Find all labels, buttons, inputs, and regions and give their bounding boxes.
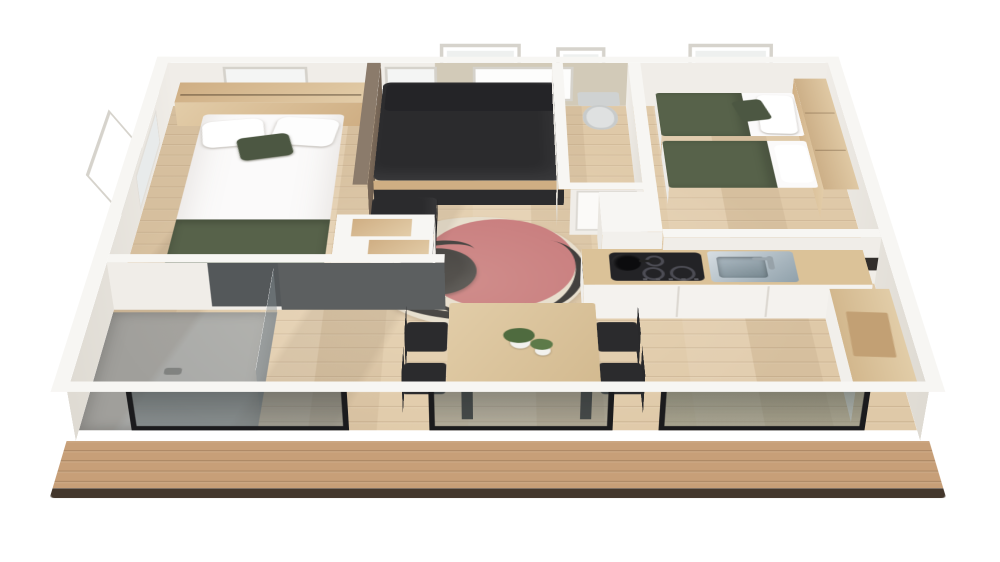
kitchen-sink bbox=[707, 251, 800, 282]
front-glass-bathroom bbox=[125, 386, 349, 430]
wall-top-kitchen bbox=[662, 229, 881, 237]
dining-table bbox=[446, 303, 601, 388]
wall-top-bathroom bbox=[107, 254, 445, 263]
shower-wall-panel bbox=[278, 263, 446, 310]
headboard-shelf bbox=[174, 83, 368, 103]
knob-strip bbox=[643, 278, 699, 280]
dining-chair bbox=[405, 322, 448, 352]
faucet-spout bbox=[752, 257, 772, 260]
shelf-rail bbox=[180, 94, 361, 95]
dining-chair bbox=[596, 322, 640, 352]
pot-handle bbox=[639, 260, 652, 262]
deck-front-edge bbox=[50, 488, 947, 498]
side-counter-item bbox=[846, 311, 897, 357]
cooktop bbox=[609, 253, 705, 281]
cabinet-seam bbox=[764, 286, 769, 317]
cabinet-seam bbox=[676, 286, 680, 317]
toilet-cistern bbox=[577, 92, 620, 106]
storage-step-wood bbox=[351, 219, 412, 236]
front-glass-entry bbox=[428, 386, 615, 430]
front-deck bbox=[53, 441, 944, 488]
kitchen-counter bbox=[581, 249, 873, 285]
wall-top-front bbox=[51, 382, 946, 392]
front-glass-kitchen bbox=[658, 386, 871, 430]
scene-3d bbox=[60, 99, 937, 441]
shower-drain bbox=[163, 368, 182, 375]
floorplan-render bbox=[0, 0, 1000, 562]
cooking-pot bbox=[611, 254, 642, 271]
